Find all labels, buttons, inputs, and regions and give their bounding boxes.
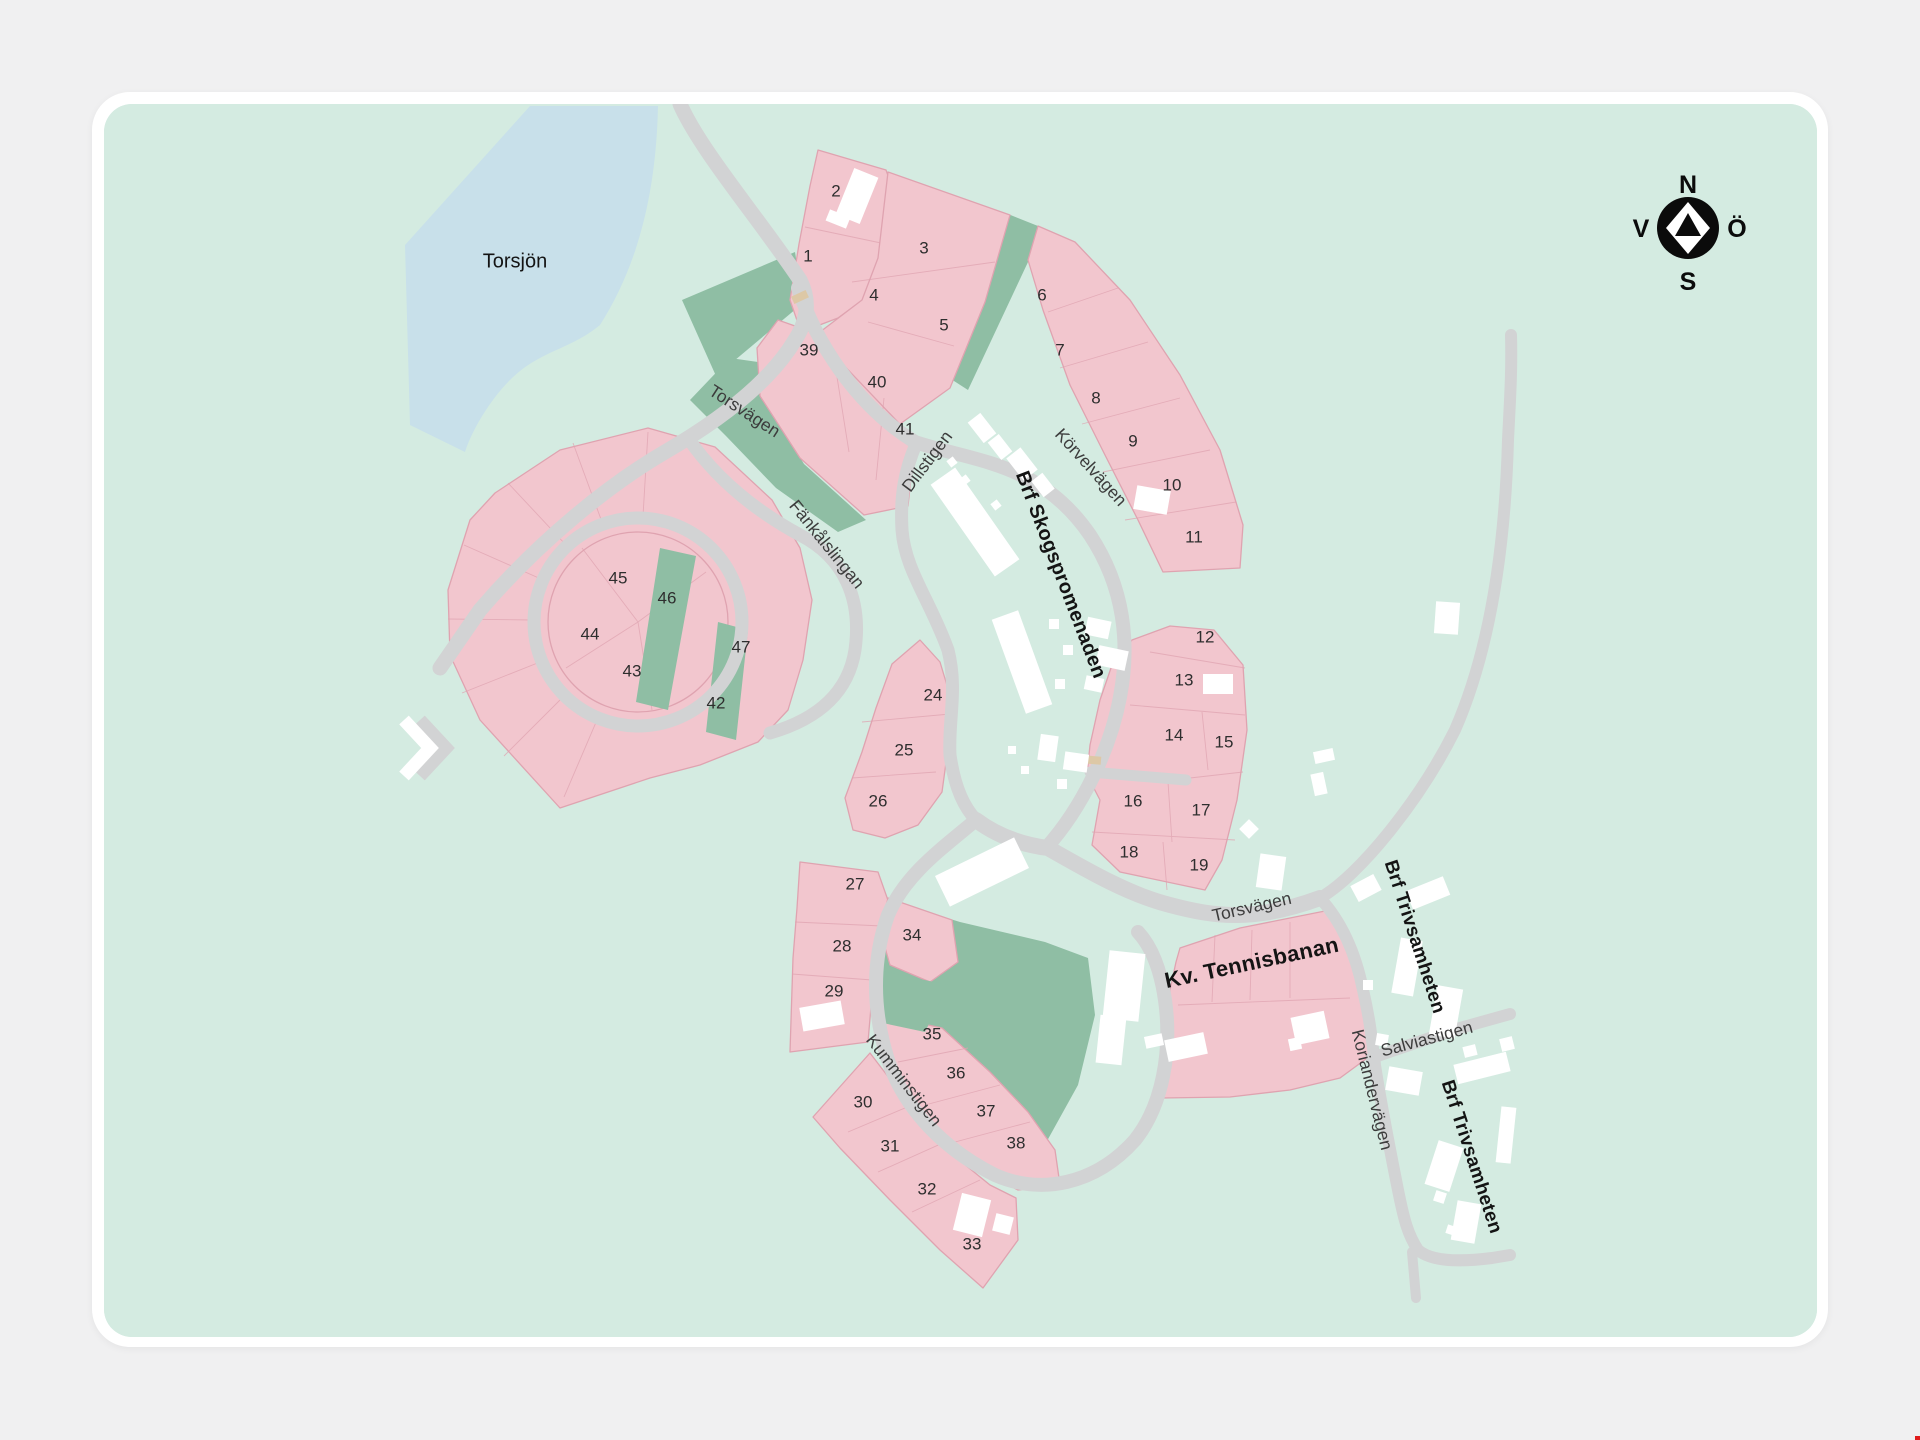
lot-number-17: 17 xyxy=(1192,800,1211,819)
lot-number-32: 32 xyxy=(918,1179,937,1198)
lot-number-43: 43 xyxy=(623,661,642,680)
area-label-lake-name: Torsjön xyxy=(483,250,547,272)
lot-number-30: 30 xyxy=(854,1092,873,1111)
compass-label-south: S xyxy=(1680,268,1697,296)
lot-number-6: 6 xyxy=(1037,285,1046,304)
map-card: 1234567891011121314151617181924252627282… xyxy=(92,92,1828,1347)
lot-number-28: 28 xyxy=(833,936,852,955)
lot-number-1: 1 xyxy=(803,246,812,265)
lot-number-5: 5 xyxy=(939,315,948,334)
lot-number-25: 25 xyxy=(895,740,914,759)
lot-number-44: 44 xyxy=(581,624,600,643)
lot-number-42: 42 xyxy=(707,693,726,712)
lot-number-14: 14 xyxy=(1165,725,1184,744)
lot-number-4: 4 xyxy=(869,285,878,304)
lot-number-8: 8 xyxy=(1091,388,1100,407)
lot-number-24: 24 xyxy=(924,685,943,704)
lot-number-9: 9 xyxy=(1128,431,1137,450)
lot-number-12: 12 xyxy=(1196,627,1215,646)
lot-number-37: 37 xyxy=(977,1101,996,1120)
lot-number-2: 2 xyxy=(831,181,840,200)
lot-number-26: 26 xyxy=(869,791,888,810)
lot-number-3: 3 xyxy=(919,238,928,257)
lot-number-41: 41 xyxy=(896,419,915,438)
lot-number-36: 36 xyxy=(947,1063,966,1082)
compass-label-north: N xyxy=(1679,171,1697,199)
lot-number-33: 33 xyxy=(963,1234,982,1253)
lot-number-29: 29 xyxy=(825,981,844,1000)
lot-number-39: 39 xyxy=(800,340,819,359)
lot-number-35: 35 xyxy=(923,1024,942,1043)
lot-number-16: 16 xyxy=(1124,791,1143,810)
lot-number-27: 27 xyxy=(846,874,865,893)
lot-number-18: 18 xyxy=(1120,842,1139,861)
map-canvas[interactable]: 1234567891011121314151617181924252627282… xyxy=(104,104,1817,1337)
lot-number-47: 47 xyxy=(732,637,751,656)
lot-number-15: 15 xyxy=(1215,732,1234,751)
lot-number-10: 10 xyxy=(1163,475,1182,494)
compass-label-west: V xyxy=(1633,215,1650,243)
lot-number-13: 13 xyxy=(1175,670,1194,689)
lot-number-11: 11 xyxy=(1185,527,1203,546)
lot-number-40: 40 xyxy=(868,372,887,391)
lot-number-7: 7 xyxy=(1055,340,1064,359)
lot-number-45: 45 xyxy=(609,568,628,587)
lot-number-19: 19 xyxy=(1190,855,1209,874)
lot-number-34: 34 xyxy=(903,925,922,944)
lot-number-46: 46 xyxy=(658,588,677,607)
compass-label-east: Ö xyxy=(1727,214,1746,243)
lot-number-31: 31 xyxy=(881,1136,900,1155)
lot-number-38: 38 xyxy=(1007,1133,1026,1152)
corner-artifact xyxy=(1915,1436,1920,1440)
